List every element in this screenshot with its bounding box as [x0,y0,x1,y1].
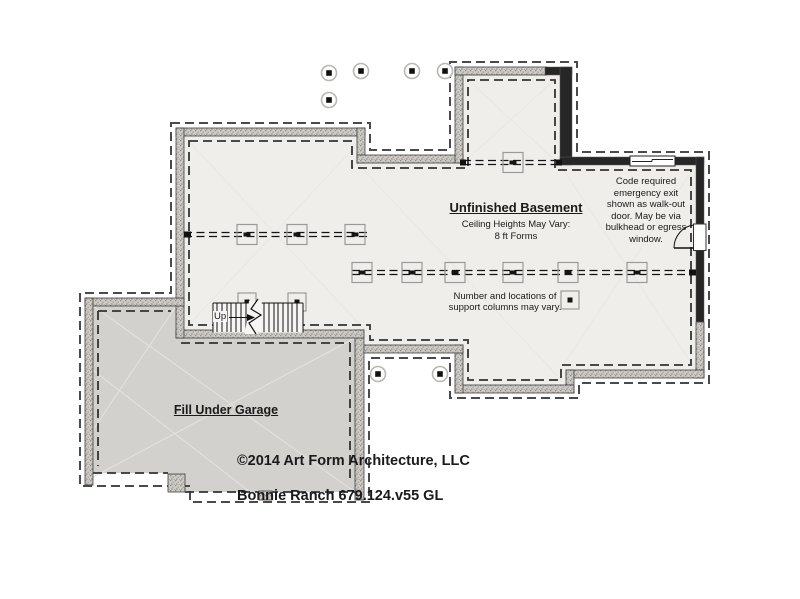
basement-room-label: Unfinished Basement [416,200,616,215]
copyright-line: ©2014 Art Form Architecture, LLC [237,453,470,471]
support-columns-note: Number and locations of support columns … [420,291,590,313]
egress-window [630,156,675,166]
garage-fill-label: Fill Under Garage [146,403,306,417]
ceiling-height-note: Ceiling Heights May Vary: 8 ft Forms [416,219,616,242]
plan-id-line: Bonnie Ranch 679.124.v55 GL [237,488,470,506]
stairs-up-label: Up [213,311,227,322]
title-block: ©2014 Art Form Architecture, LLC Bonnie … [237,435,470,523]
egress-code-note: Code required emergency exit shown as wa… [594,176,698,245]
floor-plan-page: Unfinished Basement Ceiling Heights May … [0,0,800,599]
